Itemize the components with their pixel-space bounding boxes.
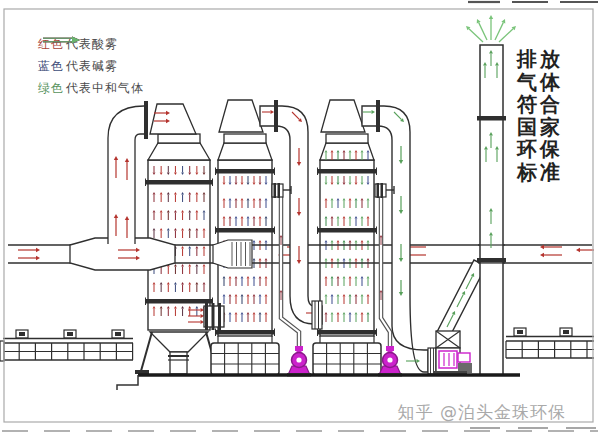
scrubber-tower-3 — [318, 100, 377, 336]
legend-row-alkali: 蓝色 代表碱雾 — [38, 58, 144, 74]
note-line: 符合 — [517, 93, 567, 116]
note-line: 国家 — [517, 116, 567, 139]
legend: 红色 代表酸雾 蓝色 代表碱雾 绿色 代表中和气体 — [38, 36, 144, 102]
right-pipe-rack — [506, 328, 594, 358]
emission-standard-note: 排放 气体 符合 国家 环保 标准 — [517, 48, 567, 183]
watermark: 知乎 @泊头金珠环保 — [398, 401, 566, 424]
left-pipe-rack — [3, 330, 133, 360]
note-line: 标准 — [517, 161, 567, 184]
legend-row-neutral: 绿色 代表中和气体 — [38, 80, 144, 96]
legend-desc-neutral: 代表中和气体 — [66, 80, 144, 97]
note-line: 气体 — [517, 71, 567, 94]
scrubber-tower-1 — [146, 104, 213, 330]
note-line: 排放 — [517, 48, 567, 71]
tower3-valve — [375, 183, 394, 198]
legend-label-blue: 蓝色 — [38, 58, 66, 75]
storage-tank-3 — [313, 336, 381, 375]
green-flow-arrow-icon — [43, 36, 81, 44]
note-line: 环保 — [517, 138, 567, 161]
circulation-pump-1 — [287, 346, 311, 377]
fan-to-stack-duct — [437, 260, 486, 338]
exhaust-stack — [466, 15, 516, 375]
legend-desc-alkali: 代表碱雾 — [66, 58, 118, 75]
storage-tank-2 — [211, 336, 279, 375]
pump2-pipe — [380, 197, 390, 348]
legend-label-green: 绿色 — [38, 80, 66, 97]
flue-gas-scrubber-diagram: 红色 代表酸雾 蓝色 代表碱雾 绿色 代表中和气体 — [0, 0, 600, 437]
scrubber-tower-2 — [216, 100, 275, 336]
tower2-valve — [272, 183, 291, 198]
fan-unit — [428, 331, 472, 375]
ground-line — [117, 375, 520, 390]
